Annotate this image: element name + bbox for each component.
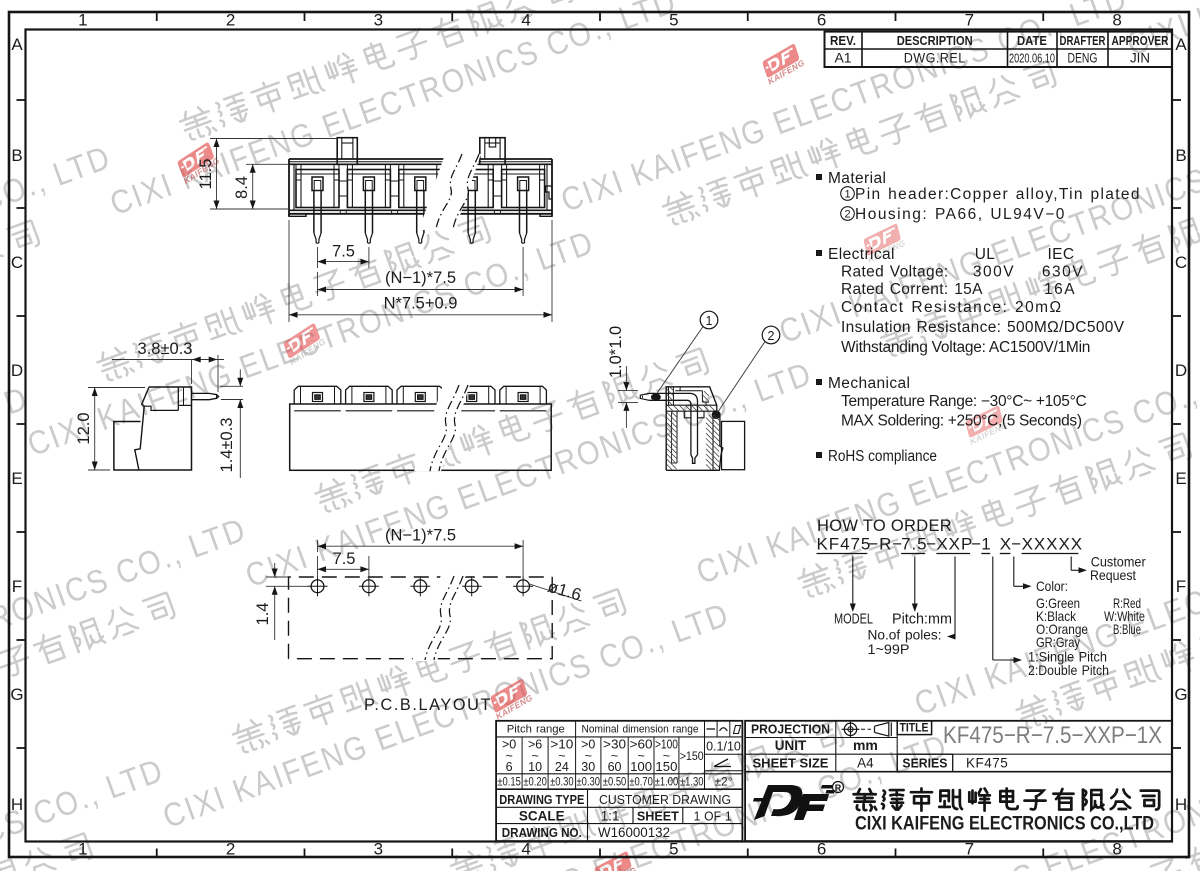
svg-text:TITLE: TITLE	[900, 723, 929, 735]
svg-text:1: 1	[844, 188, 850, 200]
svg-text:REV.: REV.	[830, 33, 856, 48]
svg-text:KF475: KF475	[966, 756, 1008, 771]
svg-text:6: 6	[817, 11, 826, 30]
svg-text:W16000132: W16000132	[598, 825, 670, 840]
svg-text:SHEET: SHEET	[637, 809, 679, 823]
svg-text:A: A	[1175, 35, 1187, 54]
svg-text:APPROVER: APPROVER	[1112, 34, 1169, 48]
svg-text:5: 5	[669, 11, 678, 30]
svg-text:DENG: DENG	[1068, 51, 1098, 66]
svg-text:F: F	[1176, 577, 1186, 596]
svg-text:11.5: 11.5	[197, 159, 215, 190]
svg-text:300V: 300V	[973, 264, 1015, 281]
svg-text:60: 60	[608, 760, 622, 774]
svg-text:MAX Soldering: +250°C,(5 Se: MAX Soldering: +250°C,(5 Seconds)	[841, 413, 1082, 430]
svg-text:7: 7	[965, 11, 974, 30]
svg-text:2: 2	[226, 840, 235, 859]
svg-text:Withstanding Voltage: AC1500: Withstanding Voltage: AC1500V/1Min	[841, 339, 1090, 356]
svg-text:Contact Resistance: 20mΩ: Contact Resistance: 20mΩ	[841, 299, 1063, 316]
svg-text:±0.15: ±0.15	[497, 777, 521, 789]
svg-text:P.C.B.LAYOUT: P.C.B.LAYOUT	[364, 696, 492, 714]
svg-text:(N−1)*7.5: (N−1)*7.5	[385, 527, 456, 545]
svg-text:4: 4	[521, 840, 530, 859]
svg-text:1 OF 1: 1 OF 1	[694, 809, 732, 823]
svg-text:Pitch:mm: Pitch:mm	[892, 612, 952, 628]
svg-text:F: F	[12, 577, 22, 596]
svg-text:Rated Voltage:: Rated Voltage:	[841, 264, 949, 281]
svg-text:2:Double Pitch: 2:Double Pitch	[1028, 663, 1109, 679]
svg-text:D: D	[1175, 361, 1187, 380]
svg-text:1.0*1.0: 1.0*1.0	[607, 326, 625, 378]
svg-text:2: 2	[226, 11, 235, 30]
svg-text:Temperature Range: −30°C~ +: Temperature Range: −30°C~ +105°C	[841, 393, 1086, 410]
svg-text:Pin header:Copper alloy,Tin: Pin header:Copper alloy,Tin plated	[855, 186, 1141, 203]
svg-text:SCALE: SCALE	[519, 808, 565, 823]
svg-text:H: H	[1175, 795, 1187, 814]
svg-text:A4: A4	[857, 756, 874, 771]
svg-text:(N−1)*7.5: (N−1)*7.5	[385, 269, 456, 287]
svg-text:B: B	[11, 146, 22, 165]
svg-text:1:1: 1:1	[601, 808, 620, 823]
svg-text:±0.70: ±0.70	[629, 777, 653, 789]
svg-text:H: H	[11, 795, 23, 814]
svg-text:630V: 630V	[1042, 264, 1084, 281]
svg-text:MODEL: MODEL	[834, 611, 873, 628]
svg-text:mm: mm	[853, 737, 878, 753]
svg-text:KF475−R−7.5−XXP−1 X−XXXXX: KF475−R−7.5−XXP−1 X−XXXXX	[817, 535, 1084, 554]
svg-text:30: 30	[581, 760, 595, 774]
svg-text:B:Blue: B:Blue	[1113, 621, 1141, 637]
svg-text:2: 2	[768, 329, 775, 343]
svg-text:100: 100	[630, 760, 652, 774]
svg-text:3: 3	[374, 840, 383, 859]
svg-text:24: 24	[555, 760, 569, 774]
svg-text:7: 7	[965, 840, 974, 859]
svg-text:JIN: JIN	[1130, 51, 1150, 66]
svg-text:RoHS compliance: RoHS compliance	[828, 448, 937, 465]
svg-text:1: 1	[78, 840, 87, 859]
svg-text:Rated Corrent: 15A: Rated Corrent: 15A	[841, 281, 983, 298]
svg-text:1.4: 1.4	[254, 603, 272, 626]
svg-text:Insulation Resistance: 500MΩ: Insulation Resistance: 500MΩ/DC500V	[841, 319, 1125, 336]
svg-text:±2°: ±2°	[714, 775, 732, 789]
svg-text:DESCRIPTION: DESCRIPTION	[897, 33, 973, 48]
svg-text:D: D	[11, 361, 23, 380]
svg-text:KF475−R−7.5−XXP−1X: KF475−R−7.5−XXP−1X	[943, 722, 1162, 749]
svg-text:2020.06.10: 2020.06.10	[1009, 52, 1055, 66]
svg-text:7.5: 7.5	[333, 550, 356, 568]
svg-text:1.4±0.3: 1.4±0.3	[218, 418, 236, 473]
svg-text:R: R	[835, 783, 842, 793]
svg-text:C: C	[1175, 253, 1187, 272]
svg-text:DRAFTER: DRAFTER	[1060, 34, 1106, 48]
svg-text:GR:Gray: GR:Gray	[1036, 634, 1080, 650]
svg-text:±0.30: ±0.30	[577, 777, 601, 789]
svg-text:DWG.REL: DWG.REL	[904, 50, 966, 66]
svg-text:DRAWING TYPE: DRAWING TYPE	[499, 793, 584, 807]
svg-text:8.4: 8.4	[233, 176, 251, 199]
svg-text:UNIT: UNIT	[775, 738, 807, 753]
svg-text:A: A	[11, 35, 23, 54]
svg-text:±0.30: ±0.30	[550, 777, 574, 789]
svg-text:2: 2	[844, 208, 850, 220]
svg-text:Mechanical: Mechanical	[828, 375, 910, 392]
svg-text:±0.20: ±0.20	[523, 777, 547, 789]
svg-text:B: B	[1175, 146, 1186, 165]
svg-text:Material: Material	[828, 170, 886, 187]
svg-text:A1: A1	[834, 50, 851, 66]
svg-text:1~99P: 1~99P	[868, 642, 910, 658]
svg-text:16A: 16A	[1044, 281, 1076, 298]
svg-text:Housing: PA66, UL94V−0: Housing: PA66, UL94V−0	[855, 206, 1066, 223]
svg-text:DRAWING NO.: DRAWING NO.	[502, 826, 582, 840]
svg-text:E: E	[1175, 469, 1186, 488]
svg-text:Request: Request	[1090, 567, 1136, 583]
svg-text:CIXI KAIFENG ELECTRONICS CO.,L: CIXI KAIFENG ELECTRONICS CO.,LTD	[855, 813, 1154, 835]
svg-text:±1.30: ±1.30	[680, 777, 704, 789]
svg-text:±1.00: ±1.00	[655, 777, 679, 789]
svg-text:7.5: 7.5	[332, 243, 355, 261]
svg-text:E: E	[11, 469, 22, 488]
svg-text:IEC: IEC	[1047, 246, 1074, 263]
svg-text:0.1/10: 0.1/10	[706, 740, 741, 754]
svg-text:5: 5	[669, 840, 678, 859]
svg-text:N*7.5+0.9: N*7.5+0.9	[384, 295, 458, 313]
svg-text:Pitch range: Pitch range	[507, 724, 565, 736]
svg-text:8: 8	[1112, 840, 1121, 859]
svg-text:150: 150	[655, 760, 677, 774]
svg-text:>150: >150	[680, 749, 704, 763]
svg-text:8: 8	[1112, 11, 1121, 30]
svg-text:4: 4	[521, 11, 530, 30]
svg-text:Nominal dimension range: Nominal dimension range	[582, 724, 699, 736]
svg-text:G: G	[10, 685, 23, 704]
svg-text:3: 3	[374, 11, 383, 30]
svg-text:SERIES: SERIES	[902, 757, 947, 771]
svg-text:HOW TO ORDER: HOW TO ORDER	[817, 517, 952, 535]
svg-text:1: 1	[78, 11, 87, 30]
svg-text:DATE: DATE	[1017, 33, 1047, 48]
svg-text:±0.50: ±0.50	[603, 777, 627, 789]
svg-text:C: C	[11, 253, 23, 272]
svg-text:Electrical: Electrical	[828, 246, 895, 263]
svg-text:6: 6	[817, 840, 826, 859]
svg-text:PROJECTION: PROJECTION	[751, 722, 830, 736]
svg-text:CUSTOMER DRAWING: CUSTOMER DRAWING	[599, 792, 731, 807]
svg-text:SHEET SIZE: SHEET SIZE	[753, 757, 829, 771]
svg-text:G: G	[1174, 685, 1187, 704]
svg-text:UL: UL	[975, 246, 996, 263]
svg-text:3.8±0.3: 3.8±0.3	[138, 340, 193, 358]
svg-text:12.0: 12.0	[75, 412, 93, 444]
svg-text:Color:: Color:	[1036, 578, 1068, 594]
svg-text:10: 10	[528, 760, 542, 774]
svg-text:6: 6	[506, 760, 513, 774]
svg-text:1: 1	[706, 314, 713, 328]
